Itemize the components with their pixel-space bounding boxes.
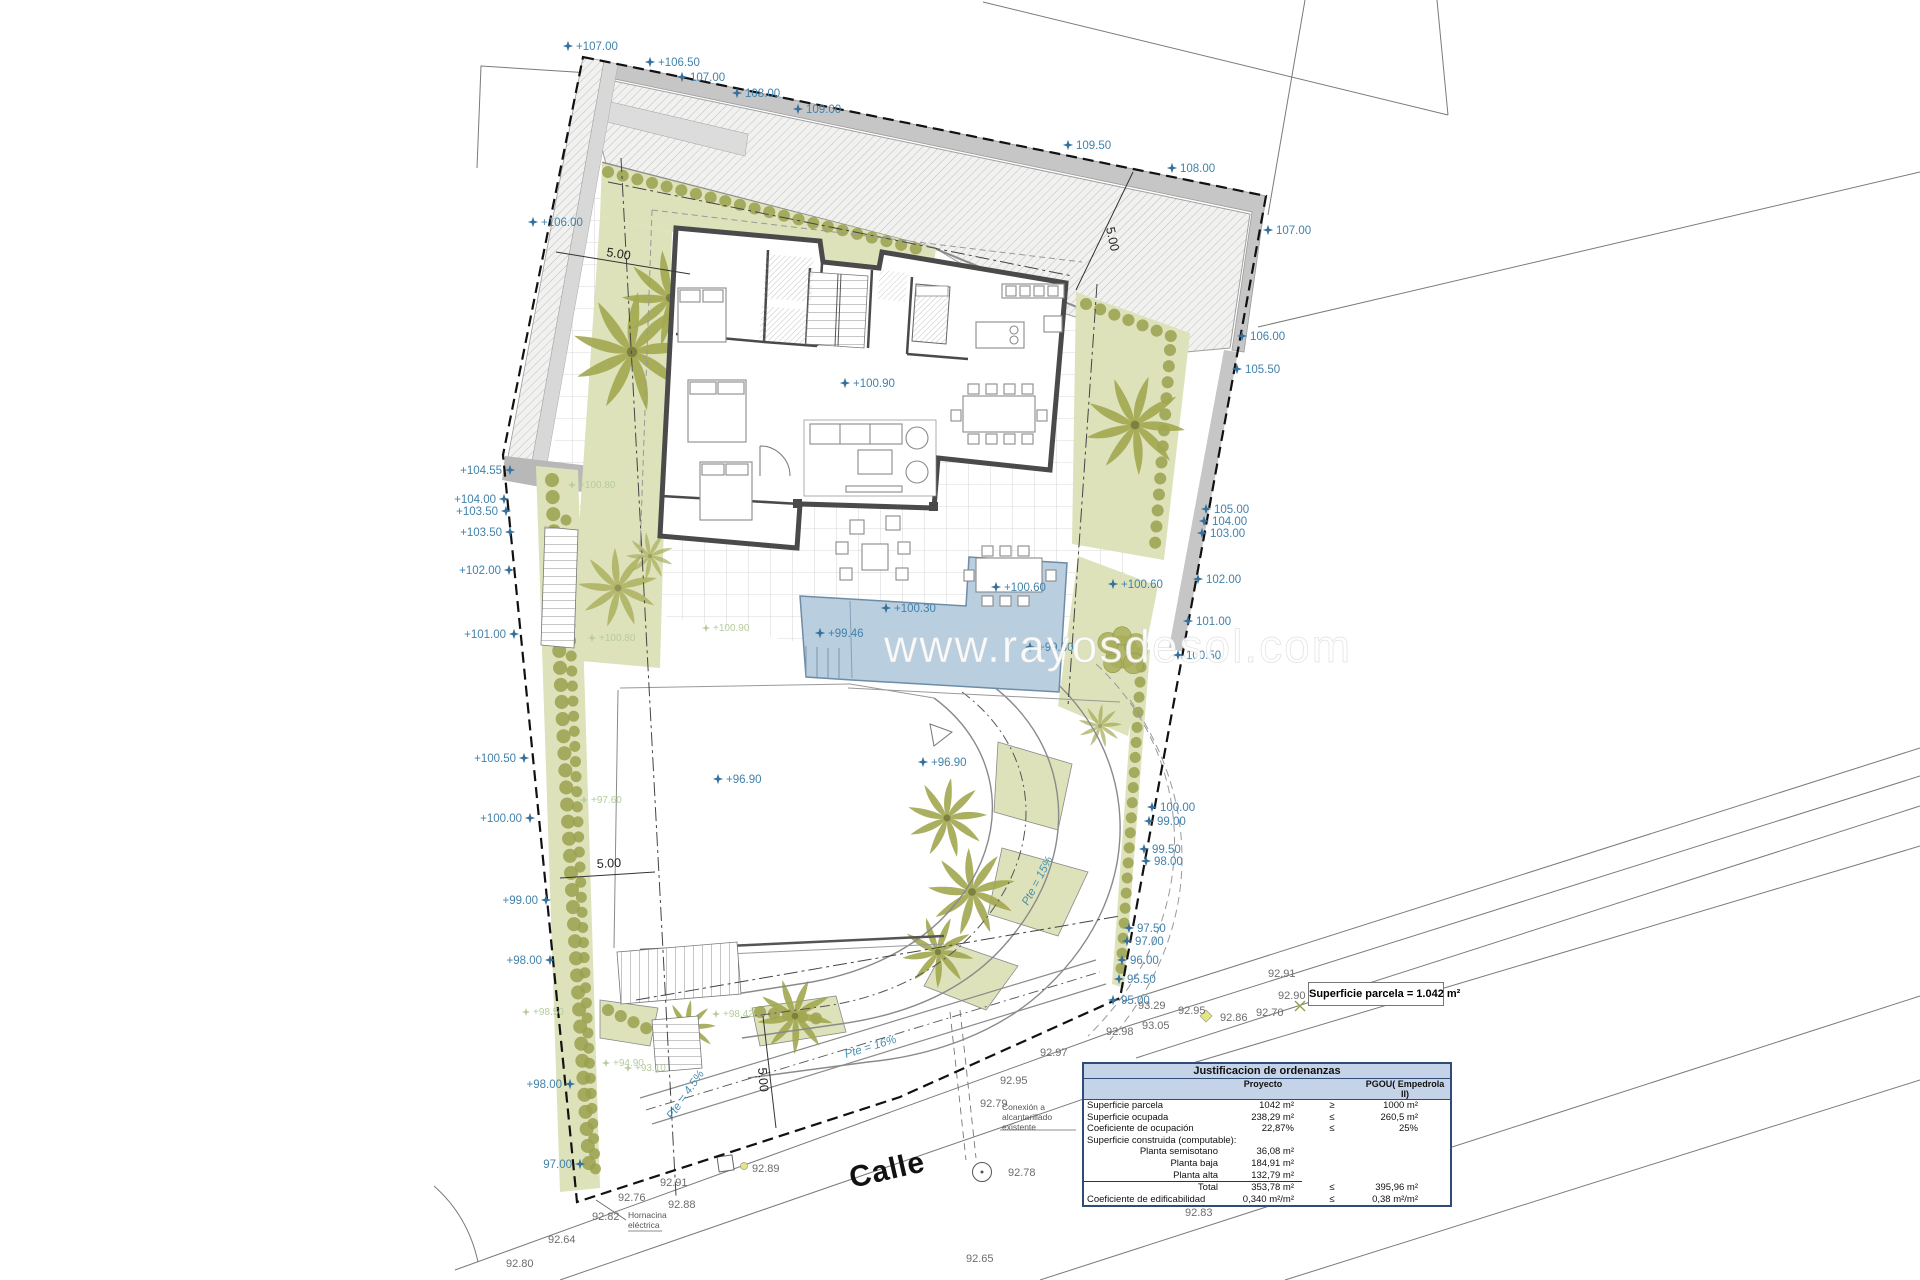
street-level-label: 92.98 — [1106, 1026, 1134, 1038]
table-cell — [1302, 1146, 1362, 1158]
elevation-label: 105.00 — [1214, 504, 1249, 516]
site-plan-page: +107.00+106.50107.00108.00109.00109.5010… — [0, 0, 1920, 1280]
elevation-star-icon — [541, 895, 551, 905]
table-cell: ≤ — [1302, 1112, 1362, 1124]
note-label: existente — [1002, 1122, 1036, 1132]
elevation-star-icon — [528, 217, 538, 227]
table-cell: Total — [1084, 1182, 1224, 1194]
elevation-label: +98.00 — [507, 955, 543, 967]
table-cell: Planta baja — [1084, 1158, 1224, 1170]
elevation-label: +101.00 — [464, 629, 506, 641]
elevation-label: 97.50 — [1137, 923, 1166, 935]
elevation-star-icon — [1141, 856, 1151, 866]
street-level-label: 92.64 — [548, 1234, 576, 1246]
header-blank — [1084, 1079, 1224, 1099]
elevation-label: 108.00 — [1180, 163, 1215, 175]
elevation-star-icon — [504, 565, 514, 575]
street-level-label: 92.95 — [1000, 1075, 1028, 1087]
street-level-label: 92.78 — [1008, 1167, 1036, 1179]
elevation-label: 99.00 — [1157, 816, 1186, 828]
elevation-label: +100.50 — [474, 753, 516, 765]
header-sign — [1302, 1079, 1362, 1099]
elevation-label: +100.90 — [853, 378, 895, 390]
table-cell: Superficie ocupada — [1084, 1112, 1224, 1124]
spot-level-label: +98.50 — [533, 1007, 564, 1018]
table-cell: Superficie parcela — [1084, 1100, 1224, 1112]
table-cell — [1302, 1135, 1362, 1147]
parcel-area-box: Superficie parcela = 1.042 m² — [1308, 982, 1444, 1006]
elevation-label: +100.00 — [480, 813, 522, 825]
elevation-label: +106.00 — [541, 217, 583, 229]
elevation-star-icon — [713, 774, 723, 784]
site-plan-drawing: +107.00+106.50107.00108.00109.00109.5010… — [0, 0, 1920, 1280]
elevation-star-icon — [918, 757, 928, 767]
table-cell: 25% — [1362, 1123, 1448, 1135]
elevation-label: +103.50 — [456, 506, 498, 518]
elevation-label: +96.90 — [726, 774, 762, 786]
ordinance-table-row: Coeficiente de ocupación22,87%≤25% — [1084, 1123, 1450, 1135]
elevation-label: +106.50 — [658, 57, 700, 69]
street-name-label: Calle — [846, 1145, 928, 1194]
street-level-label: 92.82 — [592, 1211, 620, 1223]
street-level-label: 92.89 — [752, 1163, 780, 1175]
table-cell — [1362, 1170, 1448, 1183]
table-cell: 0,340 m²/m² — [1224, 1194, 1302, 1206]
table-cell: ≤ — [1302, 1194, 1362, 1206]
note-label: alcantarillado — [1002, 1112, 1052, 1122]
elevation-label: +102.00 — [459, 565, 501, 577]
header-proyecto: Proyecto — [1224, 1079, 1302, 1099]
spot-level-label: +100.80 — [579, 480, 616, 491]
elevation-label: 96.00 — [1130, 955, 1159, 967]
ordinance-table-row: Planta alta132,79 m² — [1084, 1170, 1450, 1183]
street-level-label: 93.05 — [1142, 1020, 1170, 1032]
ordinance-table-header: Proyecto PGOU( Empedrola II) — [1084, 1079, 1450, 1100]
street-level-label: 92.88 — [668, 1199, 696, 1211]
elevation-label: 109.00 — [806, 104, 841, 116]
spot-level-label: +98.42 — [723, 1009, 754, 1020]
ordinance-table: Justificacion de ordenanzas Proyecto PGO… — [1082, 1062, 1452, 1207]
header-pgou: PGOU( Empedrola II) — [1362, 1079, 1448, 1099]
elevation-label: 98.00 — [1154, 856, 1183, 868]
spot-level-label: +100.80 — [599, 633, 636, 644]
elevation-label: 106.00 — [1250, 331, 1285, 343]
elevation-star-icon — [645, 57, 655, 67]
table-cell: 395,96 m² — [1362, 1182, 1448, 1194]
table-cell — [1362, 1158, 1448, 1170]
elevation-star-icon — [505, 527, 515, 537]
ordinance-table-row: Total353,78 m²≤395,96 m² — [1084, 1182, 1450, 1194]
street-level-label: 92.83 — [1185, 1207, 1213, 1219]
elevation-label: 107.00 — [1276, 225, 1311, 237]
elevation-label: +104.00 — [454, 494, 496, 506]
ordinance-table-row: Superficie parcela1042 m²≥1000 m² — [1084, 1100, 1450, 1112]
table-cell: Planta alta — [1084, 1170, 1224, 1183]
table-cell — [1224, 1135, 1302, 1147]
table-cell: 353,78 m² — [1224, 1182, 1302, 1194]
table-cell: 22,87% — [1224, 1123, 1302, 1135]
dimension-label: 5.00 — [596, 856, 621, 871]
street-level-label: 92.95 — [1178, 1005, 1206, 1017]
elevation-label: +98.00 — [527, 1079, 563, 1091]
ordinance-table-row: Superficie ocupada238,29 m²≤260,5 m² — [1084, 1112, 1450, 1124]
ordinance-table-row: Planta semisotano36,08 m² — [1084, 1146, 1450, 1158]
elevation-star-icon — [1108, 995, 1118, 1005]
spot-level-label: +97.60 — [591, 795, 622, 806]
elevation-label: +99.00 — [503, 895, 539, 907]
table-cell: 132,79 m² — [1224, 1170, 1302, 1183]
street-level-label: 93.29 — [1138, 1000, 1166, 1012]
spot-level-star-icon — [702, 624, 710, 632]
elevation-label: +100.60 — [1004, 582, 1046, 594]
street-level-label: 92.90 — [1278, 990, 1306, 1002]
spot-level-star-icon — [602, 1059, 610, 1067]
elevation-label: 102.00 — [1206, 574, 1241, 586]
elevation-star-icon — [519, 753, 529, 763]
elevation-label: 95.50 — [1127, 974, 1156, 986]
elevation-label: 100.00 — [1160, 802, 1195, 814]
elevation-label: +96.90 — [931, 757, 967, 769]
street-level-label: 92.76 — [618, 1192, 646, 1204]
street-level-label: 92.91 — [660, 1177, 688, 1189]
ordinance-table-title: Justificacion de ordenanzas — [1084, 1064, 1450, 1079]
elevation-star-icon — [1139, 844, 1149, 854]
elevation-star-icon — [525, 813, 535, 823]
table-cell: ≥ — [1302, 1100, 1362, 1112]
street-level-label: 92.97 — [1040, 1047, 1068, 1059]
street-level-label: 92.65 — [966, 1253, 994, 1265]
ordinance-table-row: Planta baja184,91 m² — [1084, 1158, 1450, 1170]
elevation-label: +103.50 — [460, 527, 502, 539]
table-cell: 260,5 m² — [1362, 1112, 1448, 1124]
elevation-label: +107.00 — [576, 41, 618, 53]
ordinance-table-body: Superficie parcela1042 m²≥1000 m²Superfi… — [1084, 1100, 1450, 1205]
elevation-label: +100.60 — [1121, 579, 1163, 591]
street-level-label: 92.70 — [1256, 1007, 1284, 1019]
elevation-label: 103.00 — [1210, 528, 1245, 540]
note-label: Conexión a — [1002, 1102, 1045, 1112]
elevation-label: 99.50 — [1152, 844, 1181, 856]
elevation-star-icon — [563, 41, 573, 51]
spot-level-label: +100.90 — [713, 623, 750, 634]
watermark: www.rayosdesol.com — [883, 620, 1352, 672]
elevation-label: +104.55 — [460, 465, 502, 477]
elevation-star-icon — [509, 629, 519, 639]
elevation-label: 105.50 — [1245, 364, 1280, 376]
ordinance-table-row: Superficie construida (computable): — [1084, 1135, 1450, 1147]
elevation-label: 97.00 — [543, 1159, 572, 1171]
table-cell: 36,08 m² — [1224, 1146, 1302, 1158]
street-level-label: 92.86 — [1220, 1012, 1248, 1024]
table-cell: 184,91 m² — [1224, 1158, 1302, 1170]
elevation-star-icon — [1167, 163, 1177, 173]
street-level-label: 92.80 — [506, 1258, 534, 1270]
elevation-label: 97.00 — [1135, 936, 1164, 948]
table-cell: 1000 m² — [1362, 1100, 1448, 1112]
street-level-label: 92.91 — [1268, 968, 1296, 980]
elevation-label: 108.00 — [745, 88, 780, 100]
table-cell — [1362, 1146, 1448, 1158]
table-cell: Coeficiente de edificabilidad — [1084, 1194, 1224, 1206]
table-cell — [1362, 1135, 1448, 1147]
table-cell: Planta semisotano — [1084, 1146, 1224, 1158]
elevation-star-icon — [1263, 225, 1273, 235]
elevation-star-icon — [501, 506, 511, 516]
spot-level-star-icon — [712, 1010, 720, 1018]
elevation-label: 109.50 — [1076, 140, 1111, 152]
spot-level-label: +93.10 — [635, 1063, 666, 1074]
table-cell: 1042 m² — [1224, 1100, 1302, 1112]
table-cell: Superficie construida (computable): — [1084, 1135, 1224, 1147]
dimension-label: 5.00 — [755, 1067, 771, 1093]
table-cell: ≤ — [1302, 1123, 1362, 1135]
ordinance-table-row: Coeficiente de edificabilidad0,340 m²/m²… — [1084, 1194, 1450, 1206]
elevation-label: +100.30 — [894, 603, 936, 615]
table-cell: 0,38 m²/m² — [1362, 1194, 1448, 1206]
spot-level-star-icon — [522, 1008, 530, 1016]
note-label: eléctrica — [628, 1220, 660, 1230]
elevation-star-icon — [1063, 140, 1073, 150]
elevation-label: 104.00 — [1212, 516, 1247, 528]
table-cell — [1302, 1170, 1362, 1183]
table-cell: 238,29 m² — [1224, 1112, 1302, 1124]
elevation-label: 107.00 — [690, 72, 725, 84]
table-cell: ≤ — [1302, 1182, 1362, 1194]
table-cell: Coeficiente de ocupación — [1084, 1123, 1224, 1135]
note-label: Hornacina — [628, 1210, 667, 1220]
elevation-label: +99.46 — [828, 628, 864, 640]
table-cell — [1302, 1158, 1362, 1170]
